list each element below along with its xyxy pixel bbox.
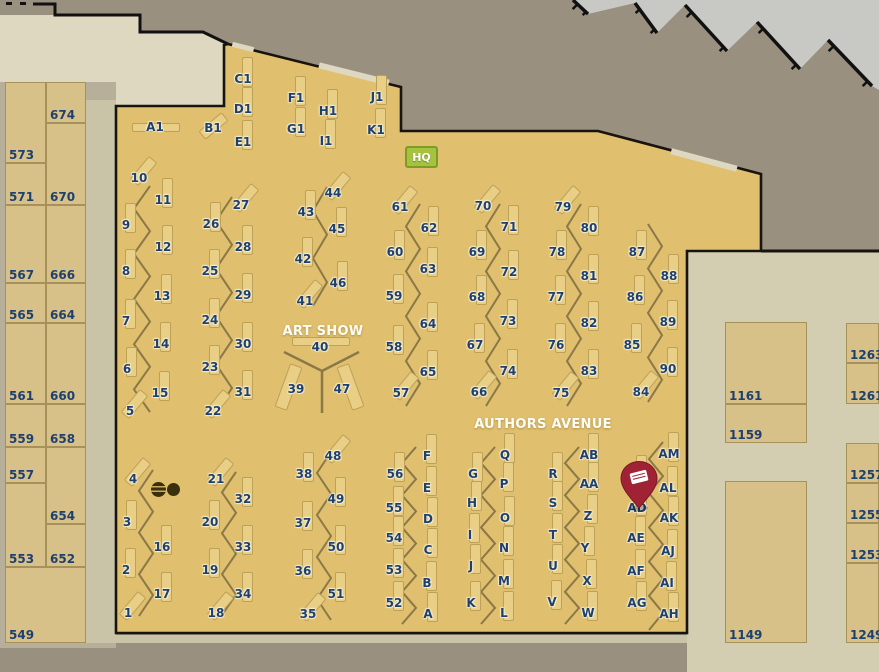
booth-label-12[interactable]: 12 [155,240,172,254]
booth-label-W[interactable]: W [581,606,594,620]
booth-label-R[interactable]: R [548,467,557,481]
booth-label-I1[interactable]: I1 [320,134,333,148]
booth-label-T[interactable]: T [549,528,557,542]
booth-label-K[interactable]: K [466,596,475,610]
booth-label-G[interactable]: G [468,467,478,481]
booth-label-8[interactable]: 8 [122,264,130,278]
booth-block-label: 1253 [850,548,879,562]
booth-label-J[interactable]: J [469,559,473,573]
booth-label-17[interactable]: 17 [154,587,171,601]
booth-label-18[interactable]: 18 [208,606,225,620]
booth-label-X[interactable]: X [582,574,591,588]
booth-label-B[interactable]: B [422,576,431,590]
booth-label-3[interactable]: 3 [123,515,131,529]
booth-label-C[interactable]: C [424,543,433,557]
booth-label-24[interactable]: 24 [202,313,219,327]
booth-label-63[interactable]: 63 [420,262,437,276]
booth-label-H[interactable]: H [467,496,477,510]
booth-block-label: 559 [9,432,34,446]
booth-label-89[interactable]: 89 [660,315,677,329]
booth-block-571[interactable]: 571 [5,163,46,205]
booth-label-84[interactable]: 84 [633,385,650,399]
booth-label-81[interactable]: 81 [581,269,598,283]
booth-label-78[interactable]: 78 [549,245,566,259]
booth-block-label: 565 [9,308,34,322]
booth-block-654[interactable]: 654 [46,447,86,524]
booth-label-76[interactable]: 76 [548,338,565,352]
booth-label-AL[interactable]: AL [660,481,677,495]
booth-block-label: 561 [9,389,34,403]
booth-block-549[interactable]: 549 [5,567,86,643]
booth-block-567[interactable]: 567 [5,205,46,283]
floor-feature-striped-circle-icon [151,482,166,497]
booth-label-1[interactable]: 1 [124,606,132,620]
booth-label-74[interactable]: 74 [500,364,517,378]
booth-label-37[interactable]: 37 [295,516,312,530]
booth-label-E[interactable]: E [423,481,431,495]
booth-label-61[interactable]: 61 [392,200,409,214]
booth-block-573[interactable]: 573 [5,82,46,163]
booth-block-label: 1263 [850,348,879,362]
booth-label-6[interactable]: 6 [123,362,131,376]
booth-block-557[interactable]: 557 [5,447,46,483]
booth-label-5[interactable]: 5 [126,404,134,418]
booth-block-664[interactable]: 664 [46,283,86,323]
booth-label-80[interactable]: 80 [581,221,598,235]
booth-block-660[interactable]: 660 [46,323,86,404]
hq-badge[interactable]: HQ [405,146,438,168]
booth-label-AA[interactable]: AA [580,477,599,491]
booth-label-58[interactable]: 58 [386,340,403,354]
booth-label-42[interactable]: 42 [295,252,312,266]
booth-label-51[interactable]: 51 [328,587,345,601]
floor-feature-solid-circle-icon [167,483,180,496]
authors-avenue-area-label: AUTHORS AVENUE [463,417,623,432]
booth-label-S[interactable]: S [549,496,558,510]
booth-label-41[interactable]: 41 [297,294,314,308]
booth-label-L[interactable]: L [500,606,508,620]
booth-label-69[interactable]: 69 [469,245,486,259]
booth-label-M[interactable]: M [498,574,510,588]
booth-label-67[interactable]: 67 [467,338,484,352]
convention-floor-map: 5735715675655615595575536746706666646606… [0,0,879,672]
wall-dash [20,2,26,5]
booth-label-AM[interactable]: AM [658,447,679,461]
booth-block-553[interactable]: 553 [5,483,46,567]
booth-label-25[interactable]: 25 [202,264,219,278]
booth-label-52[interactable]: 52 [386,596,403,610]
booth-label-19[interactable]: 19 [202,563,219,577]
booth-block-label: 670 [50,190,75,204]
booth-label-AE[interactable]: AE [627,531,644,545]
booth-label-35[interactable]: 35 [300,607,317,621]
booth-block-label: 1161 [729,389,762,403]
booth-label-64[interactable]: 64 [420,317,437,331]
booth-block-1255[interactable]: 1255 [846,483,879,523]
booth-block-label: 573 [9,148,34,162]
booth-block-1257[interactable]: 1257 [846,443,879,483]
booth-block-1149[interactable]: 1149 [725,481,807,643]
booth-label-N[interactable]: N [499,541,509,555]
booth-block-1253[interactable]: 1253 [846,523,879,563]
booth-label-23[interactable]: 23 [202,360,219,374]
booth-block-label: 1257 [850,468,879,482]
booth-label-AH[interactable]: AH [659,607,678,621]
booth-label-68[interactable]: 68 [469,290,486,304]
booth-block-label: 658 [50,432,75,446]
map-pin-book-marker[interactable] [620,461,658,511]
booth-block-label: 674 [50,108,75,122]
booth-label-AJ[interactable]: AJ [661,544,675,558]
booth-label-50[interactable]: 50 [328,540,345,554]
booth-label-10[interactable]: 10 [131,171,148,185]
booth-block-1161[interactable]: 1161 [725,322,807,404]
booth-block-1261[interactable]: 1261 [846,363,879,404]
booth-label-49[interactable]: 49 [328,492,345,506]
booth-label-Q[interactable]: Q [500,448,510,462]
booth-label-Y[interactable]: Y [581,541,590,555]
booth-block-label: 1255 [850,508,879,522]
booth-label-15[interactable]: 15 [152,386,169,400]
booth-label-20[interactable]: 20 [202,515,219,529]
booth-label-90[interactable]: 90 [660,362,677,376]
booth-label-59[interactable]: 59 [386,289,403,303]
booth-block-label: 654 [50,509,75,523]
booth-label-AF[interactable]: AF [627,564,644,578]
booth-label-72[interactable]: 72 [501,265,518,279]
booth-block-label: 553 [9,552,34,566]
booth-block-565[interactable]: 565 [5,283,46,323]
booth-block-674[interactable]: 674 [46,82,86,123]
booth-label-73[interactable]: 73 [500,314,517,328]
wall-dash [6,2,12,5]
booth-label-83[interactable]: 83 [581,364,598,378]
booth-label-2[interactable]: 2 [122,563,130,577]
booth-label-AG[interactable]: AG [627,596,646,610]
booth-block-label: 1149 [729,628,762,642]
booth-block-666[interactable]: 666 [46,205,86,283]
booth-block-label: 660 [50,389,75,403]
booth-label-53[interactable]: 53 [386,563,403,577]
booth-block-1159[interactable]: 1159 [725,404,807,443]
booth-label-77[interactable]: 77 [548,290,565,304]
booth-block-label: 567 [9,268,34,282]
booth-label-65[interactable]: 65 [420,365,437,379]
booth-label-38[interactable]: 38 [296,467,313,481]
booth-label-88[interactable]: 88 [661,269,678,283]
booth-label-F1[interactable]: F1 [288,91,305,105]
booth-label-O[interactable]: O [500,511,510,525]
booth-block-label: 664 [50,308,75,322]
booth-label-13[interactable]: 13 [154,289,171,303]
booth-label-P[interactable]: P [500,477,509,491]
booth-block-label: 1261 [850,389,879,403]
booth-label-Z[interactable]: Z [584,509,593,523]
booth-label-I[interactable]: I [468,528,472,542]
booth-label-AB[interactable]: AB [580,448,598,462]
booth-label-86[interactable]: 86 [627,290,644,304]
booth-label-82[interactable]: 82 [581,316,598,330]
booth-block-label: 549 [9,628,34,642]
booth-label-62[interactable]: 62 [421,221,438,235]
booth-label-47[interactable]: 47 [334,382,351,396]
booth-label-J1[interactable]: J1 [371,90,384,104]
booth-label-C1[interactable]: C1 [234,72,251,86]
booth-block-652[interactable]: 652 [46,524,86,567]
booth-label-71[interactable]: 71 [501,220,518,234]
booth-label-39[interactable]: 39 [288,382,305,396]
booth-block-label: 666 [50,268,75,282]
booth-block-label: 652 [50,552,75,566]
art-show-area-label: ART SHOW [243,324,403,339]
booth-label-30[interactable]: 30 [235,337,252,351]
booth-label-F[interactable]: F [423,449,431,463]
booth-label-40[interactable]: 40 [312,340,329,354]
booth-label-AI[interactable]: AI [660,576,674,590]
booth-label-9[interactable]: 9 [122,218,130,232]
booth-label-31[interactable]: 31 [235,385,252,399]
booth-label-66[interactable]: 66 [471,385,488,399]
booth-block-561[interactable]: 561 [5,323,46,404]
booth-label-K1[interactable]: K1 [367,123,385,137]
booth-block-670[interactable]: 670 [46,123,86,205]
booth-label-4[interactable]: 4 [129,472,137,486]
booth-label-11[interactable]: 11 [155,193,172,207]
booth-label-A1[interactable]: A1 [146,120,164,134]
booth-label-33[interactable]: 33 [235,540,252,554]
booth-label-A[interactable]: A [423,607,432,621]
booth-block-1249[interactable]: 1249 [846,563,879,643]
booth-label-14[interactable]: 14 [153,337,170,351]
booth-label-87[interactable]: 87 [629,245,646,259]
booth-label-27[interactable]: 27 [233,198,250,212]
booth-label-85[interactable]: 85 [624,338,641,352]
booth-label-46[interactable]: 46 [330,276,347,290]
booth-label-G1[interactable]: G1 [287,122,305,136]
pin-body [621,462,657,509]
booth-block-label: 571 [9,190,34,204]
booth-label-H1[interactable]: H1 [319,104,337,118]
booth-label-79[interactable]: 79 [555,200,572,214]
booth-block-label: 1249 [850,628,879,642]
booth-label-36[interactable]: 36 [295,564,312,578]
booth-label-70[interactable]: 70 [475,199,492,213]
booth-label-43[interactable]: 43 [298,205,315,219]
booth-label-D[interactable]: D [423,512,433,526]
left-corridor [86,100,116,643]
booth-label-U[interactable]: U [548,559,558,573]
booth-block-label: 1159 [729,428,762,442]
booth-label-26[interactable]: 26 [203,217,220,231]
booth-block-658[interactable]: 658 [46,404,86,447]
booth-label-28[interactable]: 28 [235,240,252,254]
booth-label-21[interactable]: 21 [208,472,225,486]
booth-label-57[interactable]: 57 [393,386,410,400]
booth-label-V[interactable]: V [547,595,556,609]
booth-label-E1[interactable]: E1 [235,135,252,149]
booth-label-60[interactable]: 60 [387,245,404,259]
booth-label-7[interactable]: 7 [122,314,130,328]
south-walkway [110,635,687,643]
booth-label-56[interactable]: 56 [387,467,404,481]
booth-label-16[interactable]: 16 [154,540,171,554]
booth-label-55[interactable]: 55 [386,501,403,515]
booth-label-45[interactable]: 45 [329,222,346,236]
booth-label-29[interactable]: 29 [235,288,252,302]
booth-label-34[interactable]: 34 [235,587,252,601]
booth-block-559[interactable]: 559 [5,404,46,447]
booth-label-22[interactable]: 22 [205,404,222,418]
booth-label-D1[interactable]: D1 [234,102,252,116]
booth-label-54[interactable]: 54 [386,531,403,545]
booth-label-44[interactable]: 44 [325,186,342,200]
booth-label-AK[interactable]: AK [660,511,679,525]
booth-label-75[interactable]: 75 [553,386,570,400]
booth-block-1263[interactable]: 1263 [846,323,879,363]
booth-label-32[interactable]: 32 [235,492,252,506]
booth-block-label: 557 [9,468,34,482]
booth-label-B1[interactable]: B1 [204,121,222,135]
booth-label-48[interactable]: 48 [325,449,342,463]
